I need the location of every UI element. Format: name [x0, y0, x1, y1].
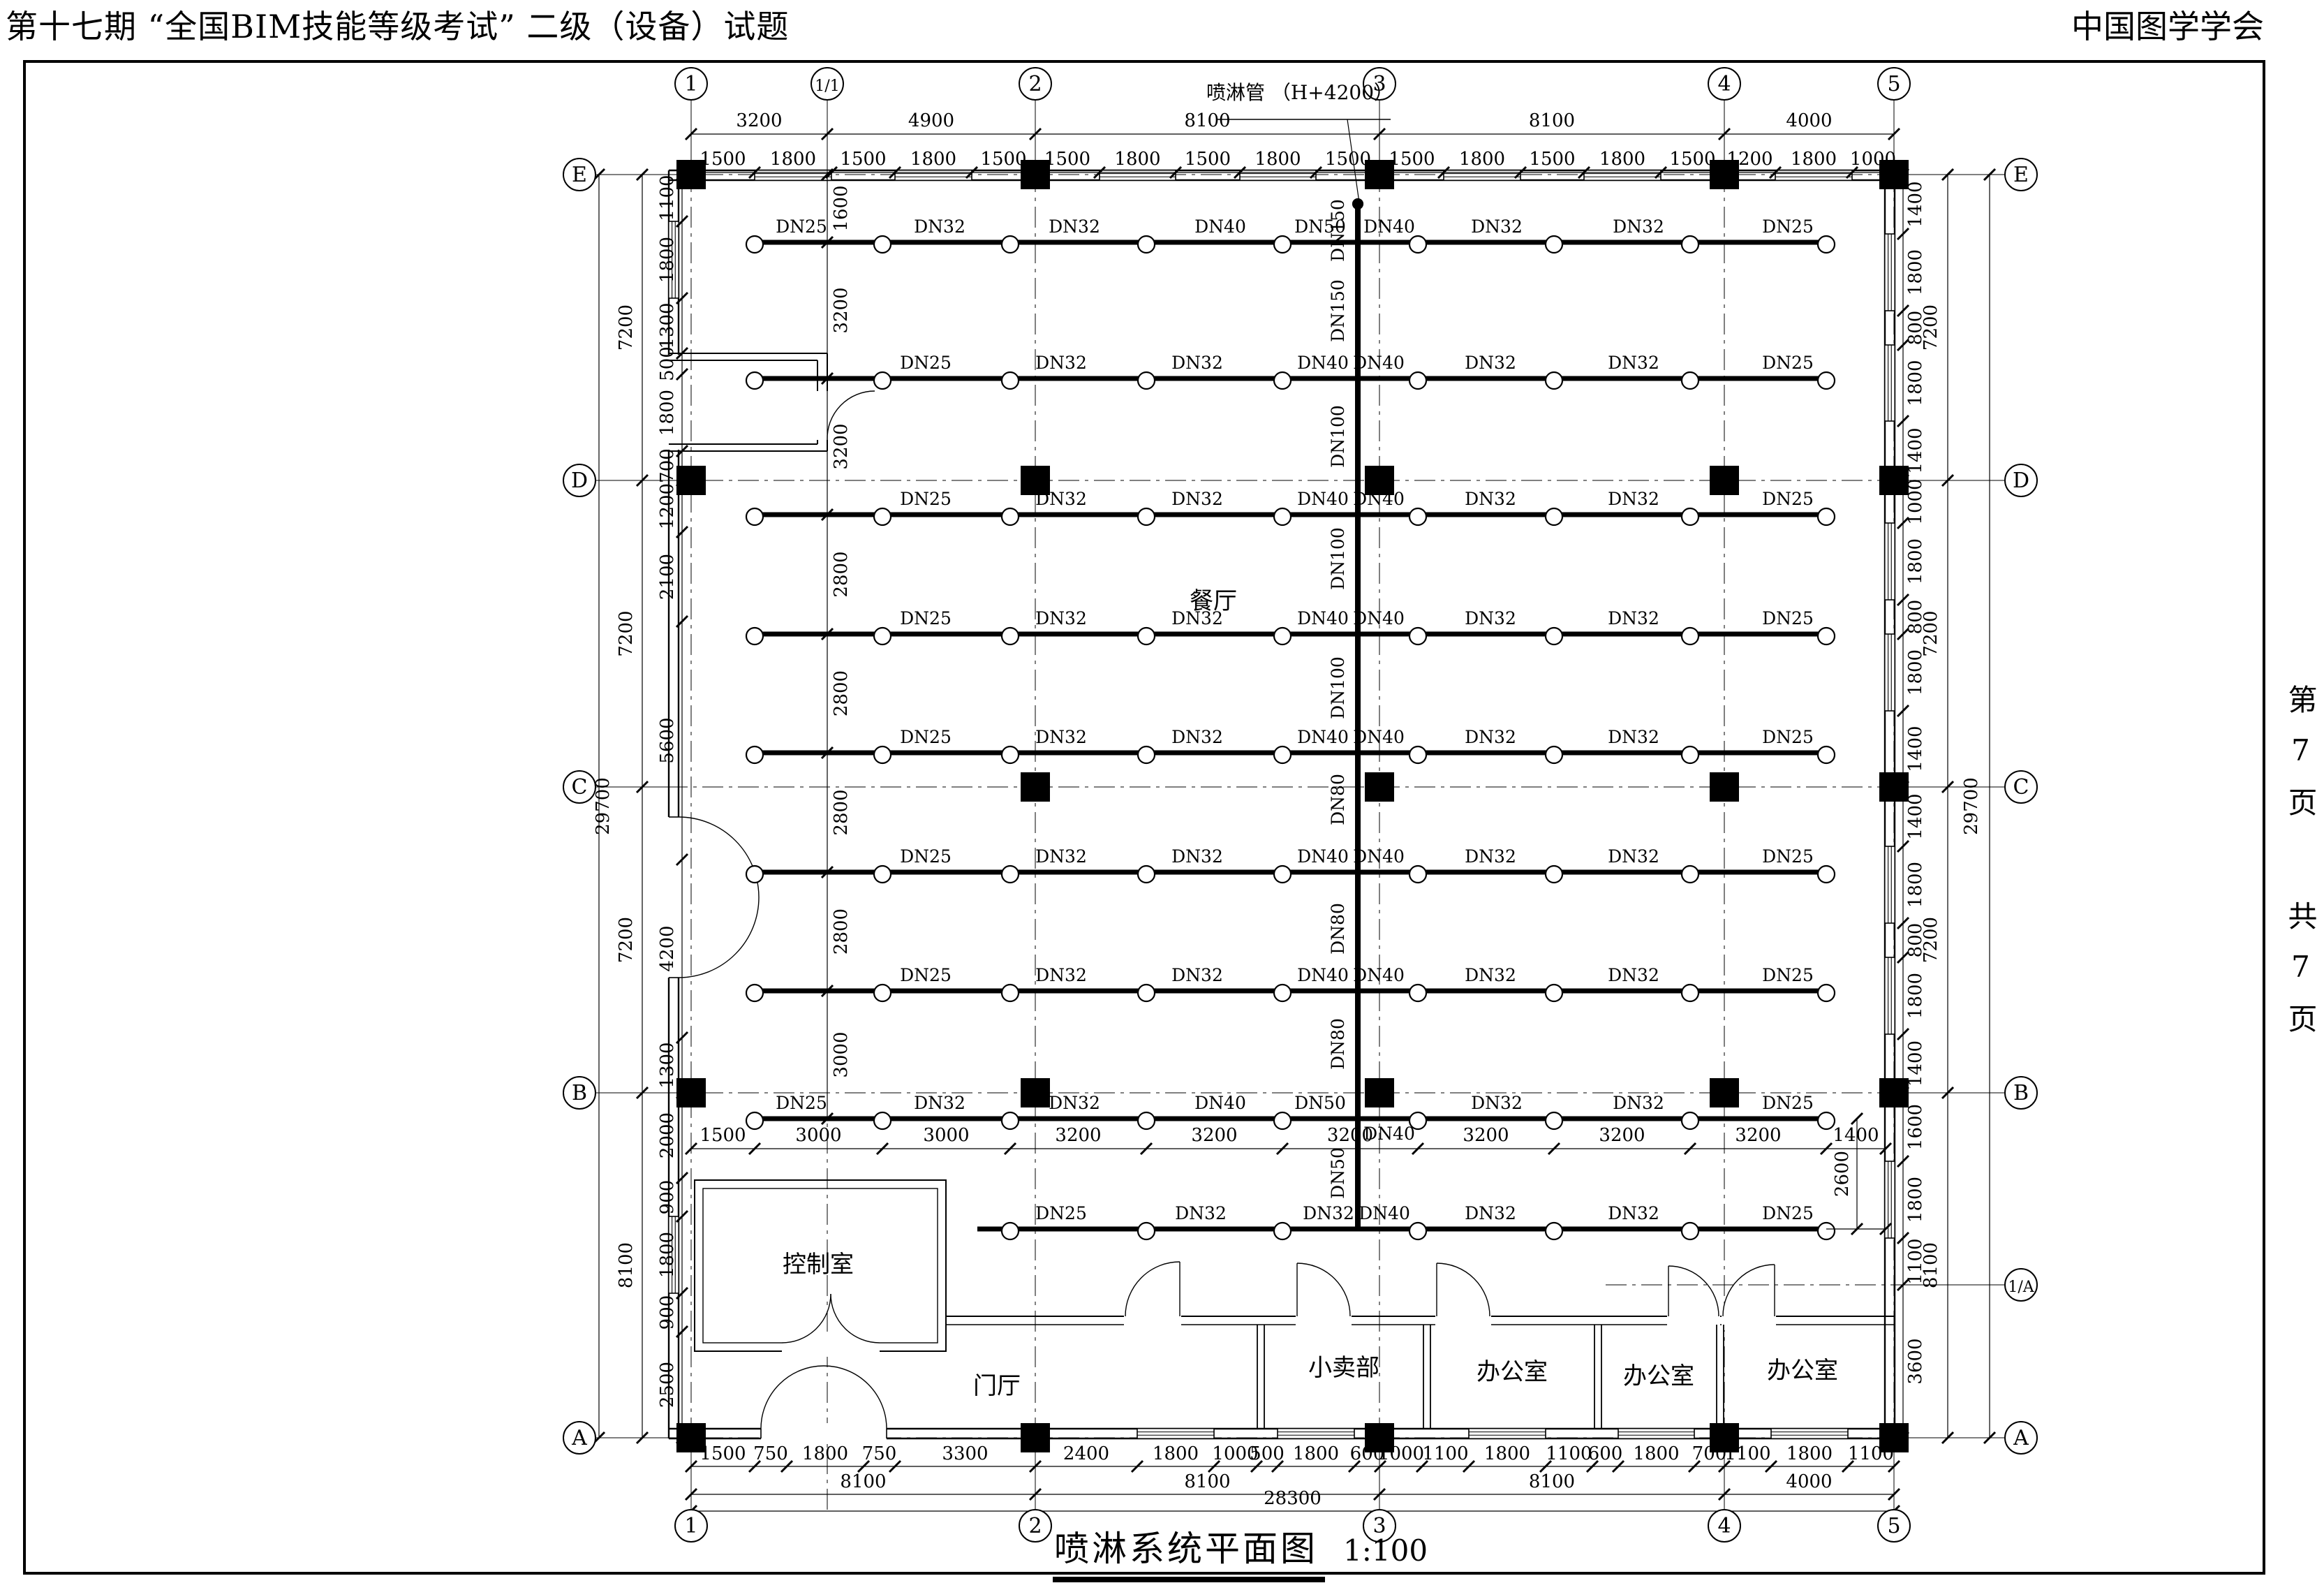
pipe-size-label: DN32	[1171, 965, 1223, 985]
pipe-size-label: DN50	[1294, 1093, 1346, 1113]
cad-rect	[895, 170, 972, 180]
pipe-size-label: DN32	[1303, 1203, 1354, 1223]
cad-rect	[1885, 523, 1895, 600]
sprinkler-head	[1682, 628, 1698, 645]
pipe-size-label: DN25	[776, 216, 827, 237]
dim-bottom-major-value: 8100	[1529, 1471, 1575, 1492]
dim-top-sub-value: 1800	[1254, 149, 1301, 170]
sprinkler-head	[1818, 985, 1835, 1001]
cad-rect	[1137, 1429, 1214, 1438]
dim-bottom-sub-value: 1800	[1293, 1443, 1339, 1464]
pipe-size-label: DN25	[900, 965, 952, 985]
sprinkler-head	[1546, 746, 1562, 763]
pipe-size-label: DN32	[1171, 727, 1223, 747]
cad-rect	[1885, 1161, 1895, 1238]
dim-sprinkler-string-value: 3200	[1191, 1125, 1237, 1146]
sprinkler-head	[1138, 236, 1155, 253]
sprinkler-head	[1682, 236, 1698, 253]
pipe-size-label: DN25	[1762, 353, 1814, 373]
structural-column	[1710, 1078, 1739, 1107]
sprinkler-head	[1002, 746, 1019, 763]
dim-right-major-value: 7200	[1920, 917, 1941, 963]
pipe-size-label: DN32	[1465, 608, 1516, 628]
sprinkler-head	[746, 985, 763, 1001]
dim-sprinkler-string-value: 3200	[1599, 1125, 1645, 1146]
pipe-size-label: DN25	[900, 489, 952, 509]
dim-right-sub-value: 1000	[1905, 478, 1926, 524]
dim-left-sub-value: 1800	[657, 1232, 678, 1278]
cad-rect	[1240, 170, 1316, 180]
dim-top-sub-value: 1800	[1114, 149, 1160, 170]
sprinkler-head	[1138, 746, 1155, 763]
dim-top-sub-value: 1500	[1529, 149, 1575, 170]
dim-branch-string-value: 2800	[831, 670, 852, 716]
dim-left-sub-value: 900	[657, 1180, 678, 1215]
grid-bubble-label: E	[2013, 163, 2029, 187]
drawing-title-block: 喷淋系统平面图 1:100	[1053, 1521, 1428, 1582]
sprinkler-head	[1274, 746, 1291, 763]
sprinkler-head	[1138, 1112, 1155, 1129]
sprinkler-head	[1546, 866, 1562, 883]
sprinkler-head	[1138, 866, 1155, 883]
pipe-size-label: DN25	[1762, 608, 1814, 628]
sprinkler-head	[1002, 866, 1019, 883]
main-pipe-size-label: DN50	[1328, 1147, 1348, 1199]
west-entrance-arc	[679, 897, 759, 978]
grid-bubble-label: 1/A	[2008, 1279, 2034, 1296]
dim-left-sub-value: 2500	[657, 1362, 678, 1408]
dim-branch-string-value: 3000	[831, 1031, 852, 1077]
pipe-size-label: DN40	[1353, 846, 1405, 867]
sprinkler-head	[1818, 1112, 1835, 1129]
dim-right-sub-value: 1800	[1905, 973, 1926, 1019]
room-door-arc	[1125, 1262, 1180, 1316]
dim-right-sub-value: 1400	[1905, 726, 1926, 772]
dim-bottom-sub-value: 1800	[1484, 1443, 1530, 1464]
sprinkler-head	[1002, 985, 1019, 1001]
sprinkler-head	[746, 236, 763, 253]
pipe-size-label: DN40	[1353, 965, 1405, 985]
room-label: 办公室	[1476, 1358, 1548, 1386]
sprinkler-head	[874, 1112, 891, 1129]
dim-left-sub-value: 4200	[657, 925, 678, 971]
dim-bottom-sub-value: 1100	[1546, 1443, 1592, 1464]
pipe-size-label: DN40	[1363, 216, 1415, 237]
dim-branch-string-value: 2800	[831, 551, 852, 597]
room-door-arc	[1437, 1263, 1490, 1316]
grid-bubble-label: 5	[1887, 72, 1900, 96]
cad-rect	[1124, 1311, 1181, 1330]
pipe-size-label: DN25	[1035, 1203, 1087, 1223]
cad-rect	[1775, 170, 1852, 180]
grid-bubble-label: D	[571, 469, 588, 493]
dim-bottom-sub-value: 750	[753, 1443, 788, 1464]
dim-right-sub-value: 1800	[1905, 1177, 1926, 1223]
dim-bottom-sub-value: 1800	[1786, 1443, 1833, 1464]
pipe-size-label: DN32	[1608, 965, 1659, 985]
sprinkler-head	[1002, 508, 1019, 525]
sprinkler-head	[1682, 746, 1698, 763]
main-pipe-size-label: DN80	[1328, 774, 1348, 825]
sprinkler-head	[746, 508, 763, 525]
sprinkler-head	[1138, 508, 1155, 525]
dim-bottom-sub-value: 1100	[1422, 1443, 1468, 1464]
pipe-size-label: DN40	[1297, 489, 1349, 509]
grid-bubble-label: 2	[1028, 1514, 1042, 1538]
drawing-sheet: { "header": { "left": "第十七期 “全国BIM技能等级考试…	[0, 0, 2324, 1590]
sprinkler-head	[1138, 372, 1155, 389]
pipe-size-label: DN40	[1297, 965, 1349, 985]
main-entrance-arc	[824, 1366, 887, 1429]
sprinkler-head	[746, 866, 763, 883]
room-label: 办公室	[1623, 1362, 1694, 1390]
sprinkler-head	[746, 1112, 763, 1129]
sprinkler-head	[1409, 866, 1426, 883]
grid-bubble-label: E	[572, 163, 587, 187]
pipe-size-label: DN32	[1465, 727, 1516, 747]
structural-column	[1365, 772, 1394, 802]
cad-rect	[1885, 234, 1895, 311]
dim-bottom-major-value: 4000	[1786, 1471, 1832, 1492]
cad-rect	[1667, 1311, 1720, 1330]
grid-bubble-label: D	[2013, 469, 2029, 493]
main-entrance-arc	[761, 1366, 824, 1429]
dim-bottom-sub-value: 1800	[802, 1443, 848, 1464]
pipe-size-label: DN32	[1465, 965, 1516, 985]
sprinkler-head	[1682, 508, 1698, 525]
sprinkler-head	[1409, 985, 1426, 1001]
main-pipe-size-label: DN80	[1328, 1018, 1348, 1070]
sprinkler-head	[1818, 628, 1835, 645]
dim-bottom-major-value: 8100	[1184, 1471, 1230, 1492]
sprinkler-head	[1682, 985, 1698, 1001]
pipe-size-label: DN25	[1762, 965, 1814, 985]
sprinkler-head	[874, 236, 891, 253]
pipe-size-label: DN25	[900, 846, 952, 867]
dim-top-sub-value: 1500	[1669, 149, 1715, 170]
structural-column	[1021, 1078, 1050, 1107]
dim-top-sub-value: 1000	[1850, 149, 1896, 170]
sprinkler-head	[1274, 236, 1291, 253]
sprinkler-head	[1682, 866, 1698, 883]
sprinkler-head	[874, 508, 891, 525]
sprinkler-head	[746, 746, 763, 763]
main-pipe-size-label: DN100	[1328, 527, 1348, 590]
sprinkler-head	[1002, 236, 1019, 253]
grid-bubble-label: 4	[1717, 72, 1731, 96]
dim-left-sub-value: 2100	[657, 554, 678, 600]
sprinkler-head	[746, 628, 763, 645]
main-pipe-size-label: DN150	[1328, 199, 1348, 262]
dim-left-sub-value: 500	[657, 346, 678, 381]
dim-left-sub-value: 1800	[657, 237, 678, 283]
dim-top-sub-value: 1500	[840, 149, 886, 170]
sprinkler-head	[1818, 372, 1835, 389]
dim-top-sub-value: 1500	[1389, 149, 1435, 170]
sprinkler-plan-canvas: 3200490081008100400015001800150018001500…	[0, 0, 2324, 1590]
drawing-title: 喷淋系统平面图	[1053, 1521, 1325, 1582]
grid-bubble-label: B	[2013, 1081, 2029, 1105]
dim-left-sub-value: 1200	[657, 483, 678, 529]
sprinkler-head	[1274, 508, 1291, 525]
room-label: 门厅	[973, 1372, 1021, 1400]
dim-bottom-sub-value: 600	[1588, 1443, 1623, 1464]
dim-right-sub-value: 1400	[1905, 1040, 1926, 1087]
sprinkler-head	[1682, 1112, 1698, 1129]
sprinkler-head	[1274, 372, 1291, 389]
structural-column	[1021, 772, 1050, 802]
dim-sprinkler-string-value: 3200	[1055, 1125, 1101, 1146]
west-entrance-arc	[679, 817, 759, 897]
dim-bottom-sub-value: 2400	[1063, 1443, 1109, 1464]
dim-top-major-value: 8100	[1184, 110, 1230, 131]
sprinkler-head	[874, 866, 891, 883]
dim-right-sub-value: 1800	[1905, 360, 1926, 406]
dim-row9-offset-value: 2600	[1832, 1151, 1853, 1197]
dim-top-sub-value: 1800	[1599, 149, 1645, 170]
structural-column	[1710, 466, 1739, 495]
dim-top-sub-value: 1200	[1726, 149, 1772, 170]
pipe-size-label: DN25	[1762, 1203, 1814, 1223]
grid-bubble-label: C	[572, 775, 588, 800]
grid-bubble-label: C	[2013, 775, 2029, 800]
sprinkler-head	[1546, 372, 1562, 389]
grid-bubble-label: A	[571, 1426, 587, 1450]
pipe-size-label: DN32	[1171, 353, 1223, 373]
pipe-size-label: DN40	[1194, 1093, 1246, 1113]
control-room-door-arc	[782, 1294, 831, 1343]
sprinkler-head	[1546, 628, 1562, 645]
pipe-size-label: DN25	[1762, 1093, 1814, 1113]
dim-bottom-sub-value: 1000	[1378, 1443, 1424, 1464]
pipe-size-label: DN32	[914, 1093, 965, 1113]
sprinkler-head	[1002, 1112, 1019, 1129]
dim-right-sub-value: 3600	[1905, 1338, 1926, 1384]
room-label: 餐厅	[1190, 587, 1237, 615]
dim-right-sub-value: 1800	[1905, 862, 1926, 908]
pipe-size-label: DN25	[900, 353, 952, 373]
main-pipe-endpoint	[1353, 199, 1363, 209]
dim-top-major-value: 4000	[1786, 110, 1832, 131]
pipe-size-label: DN32	[1171, 846, 1223, 867]
sprinkler-head	[1002, 628, 1019, 645]
dim-top-sub-value: 1800	[1791, 149, 1837, 170]
main-pipe-size-label: DN100	[1328, 405, 1348, 468]
pipe-size-label: DN40	[1353, 353, 1405, 373]
sprinkler-head	[1409, 628, 1426, 645]
sprinkler-head	[1138, 628, 1155, 645]
sprinkler-head	[1546, 1223, 1562, 1239]
pipe-size-label: DN32	[1471, 216, 1523, 237]
dim-left-sub-value: 1800	[657, 390, 678, 436]
pipe-size-label: DN32	[1613, 216, 1664, 237]
pipe-size-label: DN40	[1359, 1203, 1410, 1223]
dim-top-sub-value: 1500	[980, 149, 1026, 170]
pipe-size-label: DN32	[1608, 353, 1659, 373]
grid-bubble-label: 2	[1028, 72, 1042, 96]
dim-left-sub-value: 1300	[657, 1042, 678, 1088]
sprinkler-head	[1409, 1223, 1426, 1239]
dim-bottom-sub-value: 1100	[1724, 1443, 1770, 1464]
sprinkler-head	[1818, 508, 1835, 525]
sprinkler-head	[1138, 985, 1155, 1001]
main-pipe-size-label: DN150	[1328, 279, 1348, 342]
sprinkler-head	[1002, 372, 1019, 389]
dim-top-sub-value: 1800	[770, 149, 816, 170]
sprinkler-head	[1682, 372, 1698, 389]
cad-rect	[1584, 170, 1661, 180]
cad-rect	[1435, 1311, 1491, 1330]
dim-top-sub-value: 1500	[700, 149, 746, 170]
sprinkler-head	[1546, 985, 1562, 1001]
cad-rect	[1722, 1311, 1776, 1330]
structural-column	[1710, 772, 1739, 802]
dim-sprinkler-string-value: 3000	[795, 1125, 841, 1146]
pipe-size-label: DN32	[1608, 846, 1659, 867]
sprinkler-head	[874, 746, 891, 763]
pipe-size-label: DN40	[1297, 846, 1349, 867]
pipe-size-label: DN32	[1175, 1203, 1227, 1223]
drawing-scale: 1:100	[1343, 1533, 1428, 1568]
pipe-size-label: DN32	[1613, 1093, 1664, 1113]
pipe-size-label: DN40	[1353, 489, 1405, 509]
dim-top-major-value: 4900	[908, 110, 954, 131]
sprinkler-head	[1409, 746, 1426, 763]
dim-left-major-value: 7200	[616, 610, 637, 656]
grid-bubble-label: 1	[684, 1514, 697, 1538]
sprinkler-head	[874, 628, 891, 645]
dim-right-major-value: 7200	[1920, 610, 1941, 656]
pipe-size-label: DN25	[900, 608, 952, 628]
sprinkler-head	[1138, 1223, 1155, 1239]
dim-bottom-sub-value: 500	[1250, 1443, 1285, 1464]
pipe-size-label: DN32	[1049, 216, 1100, 237]
pipe-size-label: DN32	[914, 216, 965, 237]
dim-right-major-value: 8100	[1920, 1242, 1941, 1288]
pipe-size-label: DN32	[1471, 1093, 1523, 1113]
pipe-size-label: DN32	[1035, 608, 1087, 628]
pipe-size-label: DN25	[1762, 846, 1814, 867]
main-pipe-size-label: DN80	[1328, 903, 1348, 955]
sprinkler-head	[1409, 236, 1426, 253]
dim-right-all-value: 29700	[1961, 777, 1982, 835]
sprinkler-head	[874, 372, 891, 389]
dim-right-sub-value: 1400	[1905, 181, 1926, 227]
grid-bubble-label: 1/1	[815, 78, 839, 95]
dim-branch-string-value: 2800	[831, 908, 852, 955]
sprinkler-head	[1682, 1223, 1698, 1239]
pipe-size-label: DN32	[1049, 1093, 1100, 1113]
sprinkler-head	[1274, 1112, 1291, 1129]
pipe-size-label: DN40	[1194, 216, 1246, 237]
dim-top-sub-value: 1500	[1044, 149, 1090, 170]
sprinkler-head	[1274, 1223, 1291, 1239]
pipe-size-label: DN40	[1353, 608, 1405, 628]
dim-branch-string-value: 3200	[831, 287, 852, 333]
pipe-size-label: DN32	[1465, 1203, 1516, 1223]
dim-sprinkler-string-value: 1400	[1833, 1125, 1879, 1146]
dim-right-sub-value: 1800	[1905, 249, 1926, 295]
sprinkler-head	[874, 985, 891, 1001]
cad-rect	[1296, 1311, 1352, 1330]
dim-sprinkler-string-value: 1500	[700, 1125, 746, 1146]
grid-bubble-label: 5	[1887, 1514, 1900, 1538]
sprinkler-head	[1818, 1223, 1835, 1239]
pipe-size-label: DN32	[1465, 353, 1516, 373]
pipe-size-label: DN32	[1608, 727, 1659, 747]
sprinkler-head	[1818, 866, 1835, 883]
cad-rect	[761, 1423, 887, 1443]
dim-bottom-sub-value: 750	[862, 1443, 897, 1464]
room-door-arc	[1668, 1266, 1719, 1316]
dim-top-sub-value: 1500	[1325, 149, 1371, 170]
grid-bubble-label: A	[2013, 1426, 2029, 1450]
room-door-arc	[1297, 1263, 1350, 1316]
room-label: 办公室	[1767, 1357, 1838, 1385]
room-label: 小卖部	[1308, 1354, 1379, 1382]
grid-bubble-label: B	[572, 1081, 587, 1105]
dim-right-sub-value: 1400	[1905, 793, 1926, 839]
room-door-arc	[1723, 1265, 1775, 1316]
cad-rect	[782, 1337, 880, 1357]
pipe-size-label: DN32	[1035, 727, 1087, 747]
sprinkler-head	[1546, 508, 1562, 525]
dim-bottom-all-value: 28300	[1264, 1488, 1322, 1509]
pipe-size-label: DN40	[1353, 727, 1405, 747]
dim-left-sub-value: 5600	[657, 717, 678, 763]
dim-sprinkler-string-value: 3000	[923, 1125, 969, 1146]
dim-left-major-value: 7200	[616, 304, 637, 351]
pipe-size-label: DN32	[1608, 489, 1659, 509]
pipe-size-label: DN32	[1171, 489, 1223, 509]
dim-bottom-sub-value: 1500	[700, 1443, 746, 1464]
pipe-size-label: DN32	[1465, 489, 1516, 509]
cad-rect	[1885, 345, 1895, 421]
dim-right-sub-value: 1600	[1905, 1104, 1926, 1150]
pipe-size-label: DN40	[1363, 1124, 1415, 1144]
grid-bubble-label: 1	[684, 72, 697, 96]
sprinkler-head	[1002, 1223, 1019, 1239]
cad-rect	[1771, 1429, 1848, 1438]
pipe-size-label: DN40	[1297, 608, 1349, 628]
sprinkler-head	[1409, 508, 1426, 525]
pipe-size-label: DN32	[1608, 608, 1659, 628]
cad-rect	[1618, 1429, 1694, 1438]
pipe-size-label: DN32	[1608, 1203, 1659, 1223]
dim-top-sub-value: 1500	[1185, 149, 1231, 170]
dim-top-sub-value: 1800	[910, 149, 956, 170]
pipe-size-label: DN40	[1297, 353, 1349, 373]
sprinkler-head	[1818, 236, 1835, 253]
pipe-size-label: DN25	[1762, 216, 1814, 237]
dim-bottom-sub-value: 1800	[1153, 1443, 1199, 1464]
dim-left-sub-value: 900	[657, 1295, 678, 1330]
sprinkler-head	[1409, 372, 1426, 389]
sprinkler-head	[1274, 985, 1291, 1001]
dim-left-sub-value: 1300	[657, 302, 678, 348]
sprinkler-head	[1818, 746, 1835, 763]
cad-rect	[1444, 170, 1520, 180]
cad-rect	[1885, 846, 1895, 923]
dim-bottom-sub-value: 1800	[1633, 1443, 1679, 1464]
sprinkler-head	[1274, 866, 1291, 883]
sprinkler-pipe-note: 喷淋管 （H+4200）	[1206, 81, 1393, 104]
dim-top-major-value: 8100	[1529, 110, 1575, 131]
pipe-size-label: DN32	[1035, 846, 1087, 867]
pipe-size-label: DN40	[1297, 727, 1349, 747]
cad-rect	[1885, 957, 1895, 1034]
sprinkler-head	[1546, 1112, 1562, 1129]
